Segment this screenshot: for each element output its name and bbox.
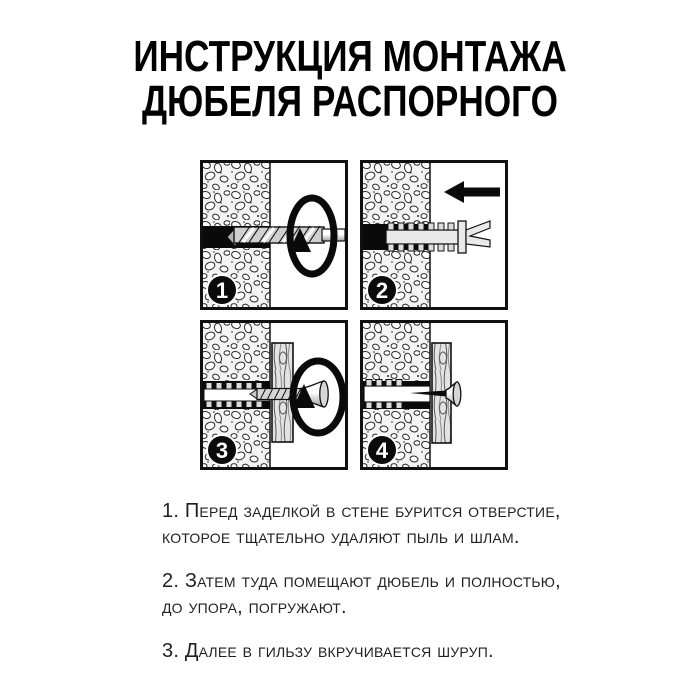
instruction-poster: ИНСТРУКЦИЯ МОНТАЖА ДЮБЕЛЯ РАСПОРНОГО xyxy=(0,0,700,700)
step-number-badge: 4 xyxy=(367,435,397,465)
step-number-badge: 1 xyxy=(207,275,237,305)
instruction-1-line-2: которое тщательно удаляют пыль и шлам. xyxy=(162,526,520,548)
instruction-2-line-1: 2. Затем туда помещают дюбель и полность… xyxy=(162,570,561,592)
instruction-item-1: 1. Перед заделкой в стене бурится отверс… xyxy=(162,498,594,550)
step-2-panel-insert-dowel: 2 xyxy=(360,160,508,310)
step-number: 4 xyxy=(376,438,389,463)
instructions-list: 1. Перед заделкой в стене бурится отверс… xyxy=(162,498,594,682)
step-3-panel-screwing: 3 xyxy=(200,320,348,470)
poster-title-line-2: ДЮБЕЛЯ РАСПОРНОГО xyxy=(70,79,630,124)
poster-title-line-1: ИНСТРУКЦИЯ МОНТАЖА xyxy=(70,34,630,79)
instruction-1-line-1: 1. Перед заделкой в стене бурится отверс… xyxy=(162,500,561,522)
step-number: 3 xyxy=(216,438,228,463)
step-4-panel-finished: 4 xyxy=(360,320,508,470)
step-number: 1 xyxy=(216,278,228,303)
instruction-item-2: 2. Затем туда помещают дюбель и полность… xyxy=(162,568,594,620)
step-number: 2 xyxy=(376,278,388,303)
step-1-panel-drilling: 1 xyxy=(200,160,348,310)
instruction-item-3: 3. Далее в гильзу вкручивается шуруп. xyxy=(162,638,594,664)
poster-title: ИНСТРУКЦИЯ МОНТАЖА ДЮБЕЛЯ РАСПОРНОГО xyxy=(0,34,700,124)
instruction-3-line-1: 3. Далее в гильзу вкручивается шуруп. xyxy=(162,640,494,662)
step-number-badge: 2 xyxy=(367,275,397,305)
step-number-badge: 3 xyxy=(207,435,237,465)
instruction-2-line-2: до упора, погружают. xyxy=(162,596,347,618)
